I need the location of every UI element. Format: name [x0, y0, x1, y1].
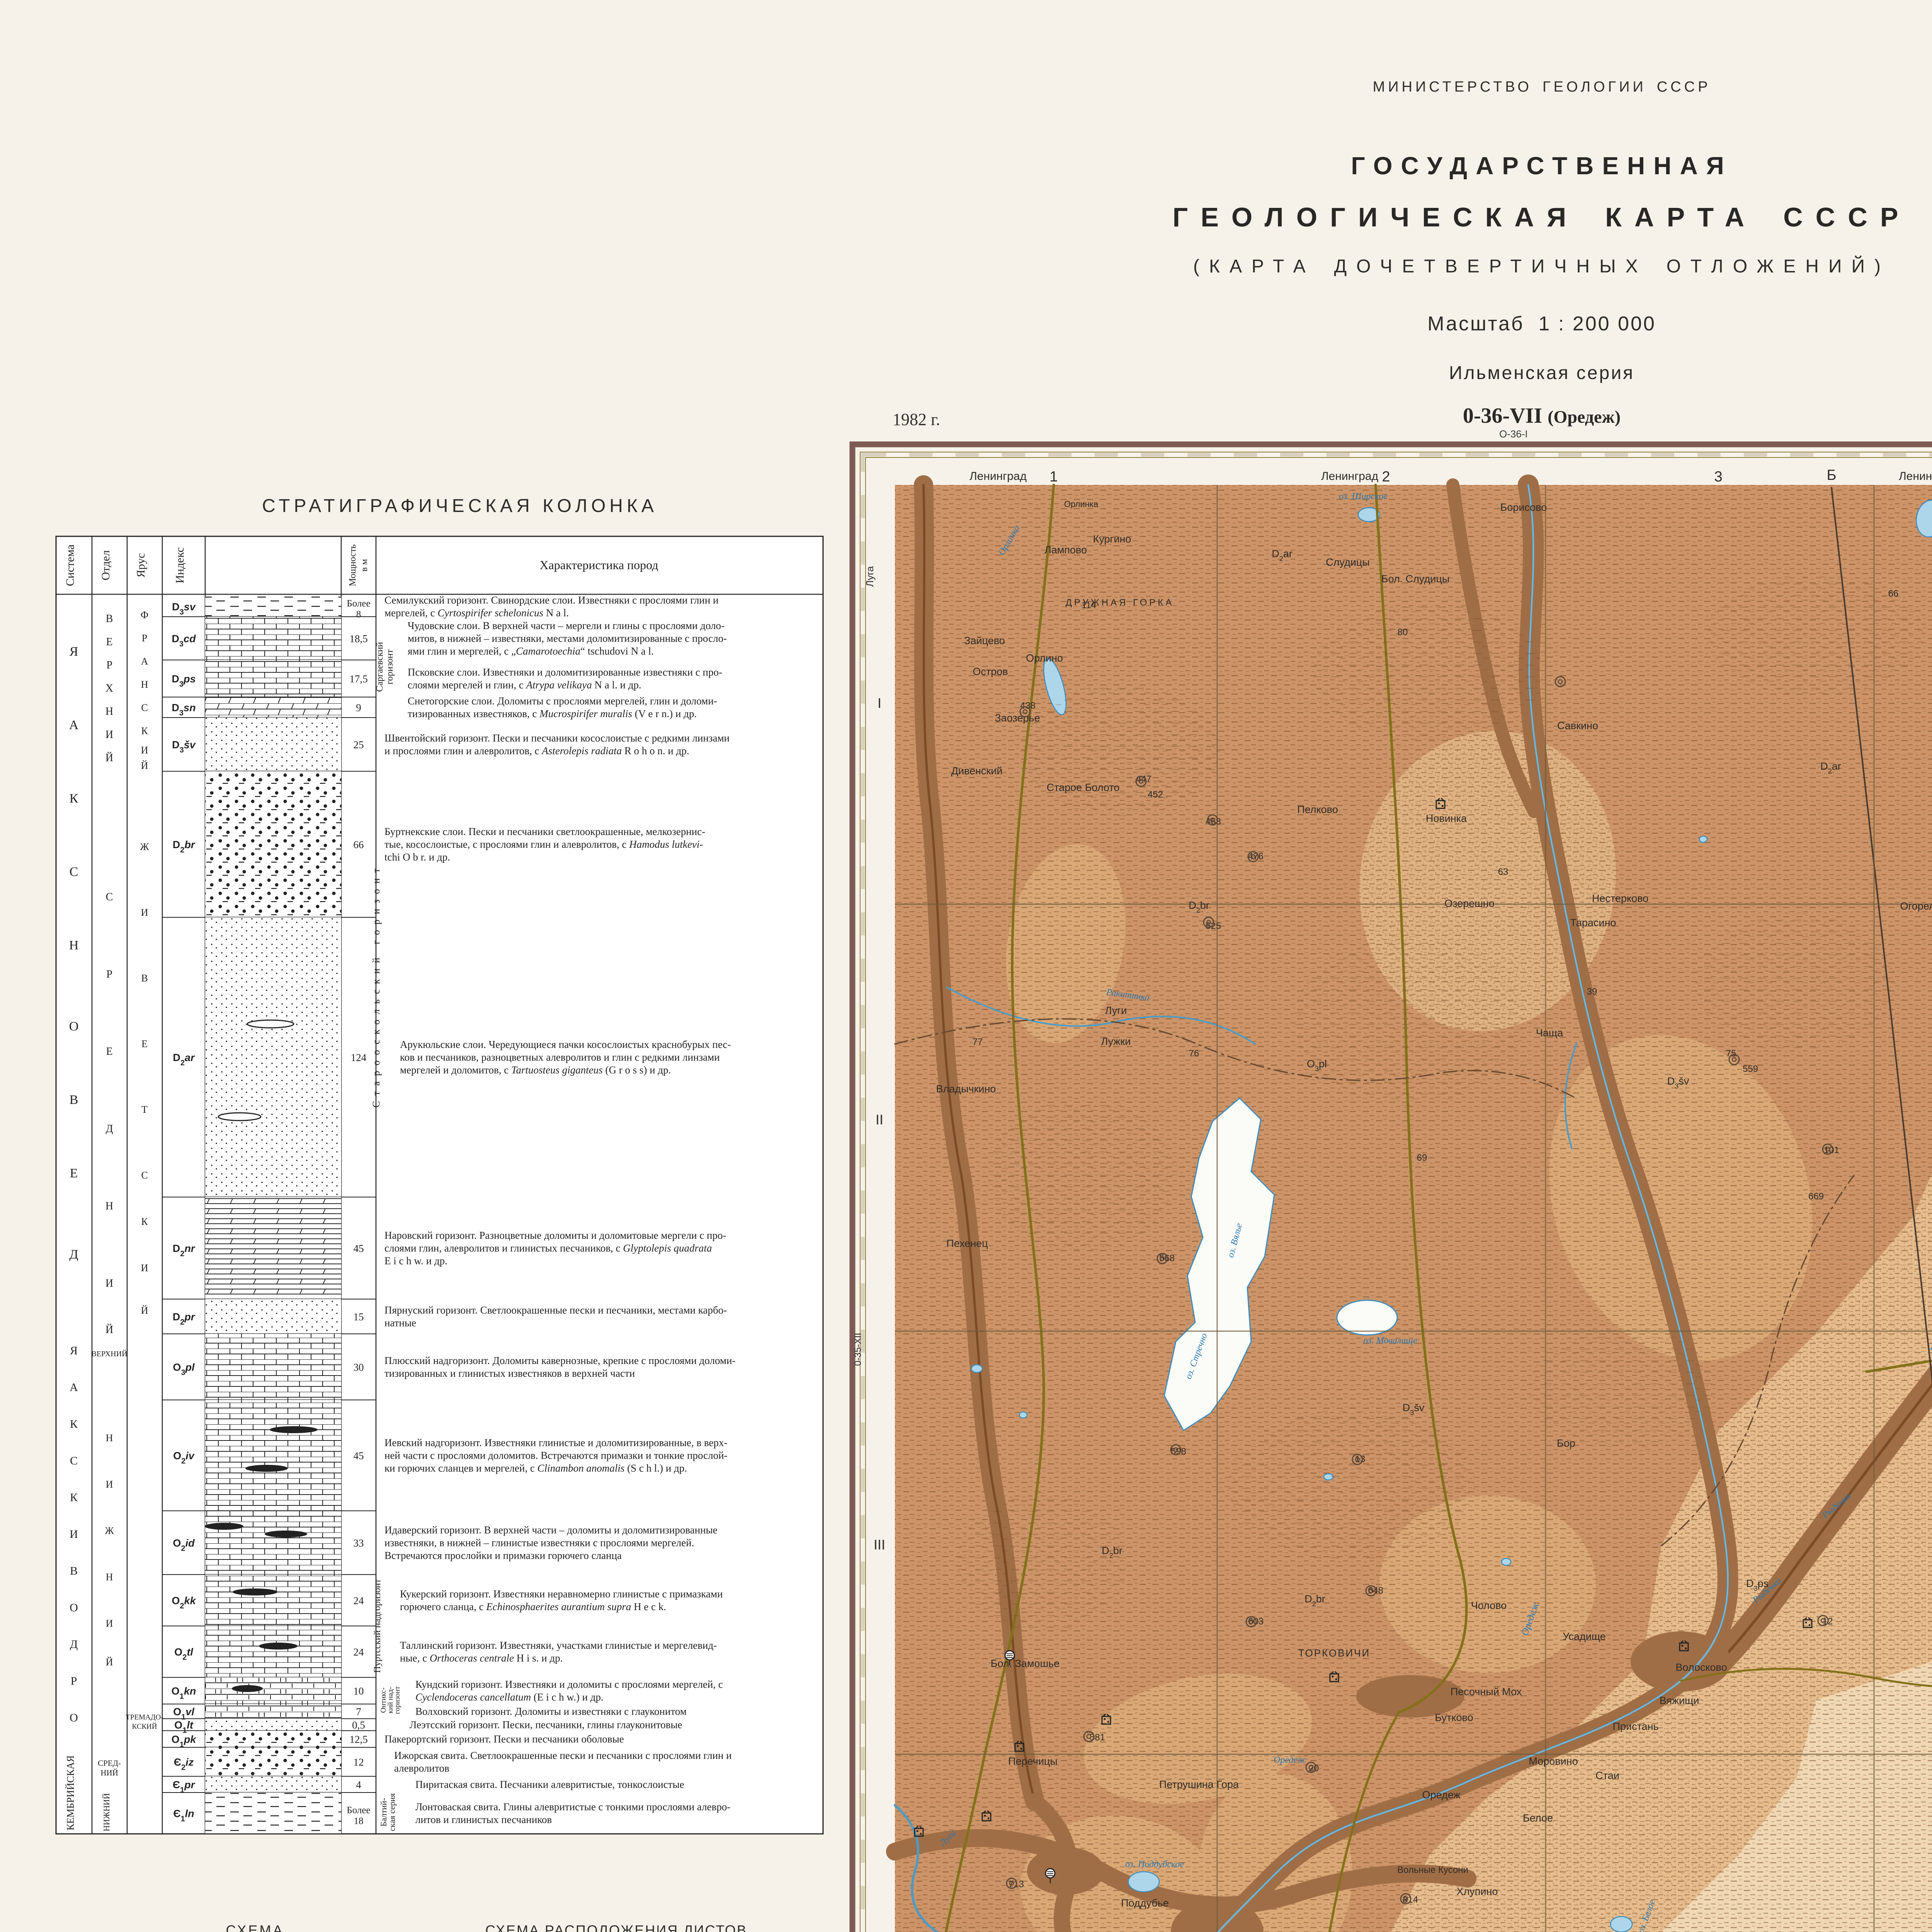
svg-text:Пакерортский горизонт. Пески и: Пакерортский горизонт. Пески и песчаники…: [384, 1733, 624, 1745]
svg-text:в м: в м: [359, 559, 369, 572]
svg-text:СРЕД-: СРЕД-: [98, 1759, 121, 1768]
svg-text:17,5: 17,5: [349, 673, 367, 685]
svg-text:Хлупино: Хлупино: [1457, 1886, 1498, 1897]
svg-text:Б: Б: [1827, 467, 1837, 483]
svg-text:Усадище: Усадище: [1563, 1631, 1606, 1642]
svg-text:Е: Е: [106, 636, 112, 648]
svg-text:Ижорская свита. Светлоокрашенн: Ижорская свита. Светлоокрашенные пески и…: [394, 1750, 732, 1761]
svg-text:И: И: [141, 1262, 148, 1274]
svg-text:известняки, в нижней – глинист: известняки, в нижней – глинистые известн…: [384, 1537, 694, 1549]
svg-text:25: 25: [354, 739, 364, 751]
svg-text:II: II: [876, 1112, 883, 1128]
svg-text:0,5: 0,5: [352, 1719, 365, 1731]
svg-text:669: 669: [1808, 1191, 1824, 1202]
svg-text:мергелей, с Cyrtospirifer sche: мергелей, с Cyrtospirifer schelonicus N …: [384, 607, 569, 619]
svg-text:Тарасино: Тарасино: [1570, 917, 1616, 929]
svg-text:Озерешно: Озерешно: [1444, 898, 1495, 909]
svg-text:Старооскольский горизонт: Старооскольский горизонт: [371, 863, 382, 1107]
svg-text:К: К: [70, 1418, 78, 1430]
svg-text:24: 24: [354, 1595, 364, 1607]
svg-text:С: С: [70, 865, 78, 879]
svg-text:К: К: [141, 1216, 148, 1227]
svg-text:Лампово: Лампово: [1044, 544, 1087, 556]
svg-text:И: И: [141, 745, 148, 756]
svg-text:Луга: Луга: [864, 566, 876, 587]
svg-text:И: И: [70, 1528, 78, 1541]
svg-text:Е: Е: [141, 1038, 148, 1049]
svg-text:Й: Й: [106, 1656, 113, 1668]
svg-text:тизированных известняков, с Mu: тизированных известняков, с Mucrospirife…: [408, 708, 697, 719]
svg-text:Дивенский: Дивенский: [951, 765, 1003, 777]
svg-text:69: 69: [1417, 1153, 1427, 1163]
svg-text:И: И: [106, 1479, 113, 1490]
svg-text:Й: Й: [105, 752, 113, 764]
svg-text:2: 2: [1382, 469, 1390, 485]
svg-text:447: 447: [1136, 774, 1151, 784]
svg-text:Петрушина Гора: Петрушина Гора: [1159, 1779, 1239, 1790]
svg-text:Н: Н: [106, 1432, 113, 1444]
svg-text:мергелей и доломитов, с Tartuo: мергелей и доломитов, с Tartuosteus giga…: [400, 1064, 671, 1076]
svg-text:Пристань: Пристань: [1612, 1721, 1658, 1732]
svg-text:Более: Более: [347, 599, 370, 609]
svg-text:слоями глин, алевролитов и гли: слоями глин, алевролитов и глинистых пес…: [384, 1242, 712, 1254]
svg-text:алевролитов: алевролитов: [394, 1762, 449, 1774]
svg-text:Д: Д: [105, 1123, 113, 1135]
svg-text:Кундский горизонт. Известняки: Кундский горизонт. Известняки и доломиты…: [415, 1679, 723, 1690]
svg-text:Н: Н: [106, 1571, 113, 1583]
svg-text:ки горючих сланцев и мергелей,: ки горючих сланцев и мергелей, с Clinamb…: [384, 1463, 687, 1474]
svg-text:В: В: [141, 973, 148, 984]
svg-text:Встречаются прослойки и примаз: Встречаются прослойки и примазки горючег…: [384, 1550, 622, 1561]
svg-text:Р: Р: [106, 659, 112, 671]
svg-text:Луги: Луги: [1105, 1005, 1127, 1016]
svg-text:Лонтоваская свита. Глины алевр: Лонтоваская свита. Глины алевритистые с …: [415, 1801, 730, 1813]
svg-text:И: И: [105, 1277, 113, 1289]
svg-text:Таллинский горизонт. Известняк: Таллинский горизонт. Известняки, участка…: [400, 1639, 717, 1651]
svg-text:Перечицы: Перечицы: [1008, 1755, 1058, 1767]
svg-text:Псковские слои. Известняки и д: Псковские слои. Известняки и доломитизир…: [408, 667, 722, 678]
svg-text:77: 77: [973, 1037, 983, 1047]
svg-text:митов, в нижней – известняки,: митов, в нижней – известняки, местами до…: [408, 633, 727, 644]
svg-text:Пехенец: Пехенец: [946, 1238, 988, 1249]
svg-text:Д: Д: [69, 1247, 78, 1262]
svg-text:15: 15: [354, 1311, 364, 1323]
svg-text:ТОРКОВИЧИ: ТОРКОВИЧИ: [1298, 1647, 1370, 1659]
svg-text:Оредеж: Оредеж: [1422, 1789, 1461, 1801]
svg-text:III: III: [874, 1537, 885, 1553]
svg-text:Белое: Белое: [1523, 1812, 1553, 1824]
svg-text:Снетогорские слои. Доломиты с: Снетогорские слои. Доломиты с прослоями …: [408, 695, 717, 707]
svg-text:Чудовские слои. В верхней част: Чудовские слои. В верхней части – мергел…: [408, 620, 724, 631]
svg-text:В: В: [70, 1565, 78, 1577]
svg-text:4: 4: [356, 1779, 361, 1791]
svg-text:Пелково: Пелково: [1297, 804, 1338, 815]
svg-text:К: К: [70, 791, 78, 806]
svg-text:Нестерково: Нестерково: [1592, 893, 1648, 904]
svg-text:Оредеж: Оредеж: [1274, 1755, 1306, 1765]
svg-text:Владычкино: Владычкино: [936, 1083, 996, 1095]
svg-text:Наровский горизонт. Разноцветн: Наровский горизонт. Разноцветные доломит…: [384, 1230, 726, 1241]
svg-text:9: 9: [356, 702, 361, 714]
svg-text:Р: Р: [106, 968, 112, 980]
svg-text:ные, с Orthoceras centrale H: ные, с Orthoceras centrale H i s. и др.: [400, 1652, 563, 1664]
svg-text:горизонт: горизонт: [393, 1686, 401, 1714]
svg-text:Леэтсский горизонт. Пески, пес: Леэтсский горизонт. Пески, песчаники, гл…: [410, 1719, 682, 1731]
svg-text:559: 559: [1743, 1064, 1758, 1074]
svg-text:Орлинка: Орлинка: [1064, 499, 1099, 509]
svg-text:12: 12: [354, 1757, 364, 1768]
svg-text:оз. Мочалище: оз. Мочалище: [1363, 1336, 1417, 1346]
svg-text:Стаи: Стаи: [1595, 1770, 1619, 1781]
svg-text:В: В: [106, 613, 113, 625]
svg-text:А: А: [69, 718, 79, 732]
svg-text:Вольные Кусони: Вольные Кусони: [1397, 1865, 1468, 1875]
svg-text:ями глин и мергелей, с „Camaro: ями глин и мергелей, с „Camarotoechia“ t…: [408, 645, 654, 657]
svg-text:80: 80: [1398, 627, 1408, 638]
svg-text:18: 18: [354, 1816, 364, 1827]
svg-text:438: 438: [1020, 701, 1036, 711]
svg-text:О: О: [70, 1711, 78, 1724]
svg-text:В: В: [70, 1093, 78, 1107]
svg-text:и прослоями глин и алевролитов: и прослоями глин и алевролитов, с Astero…: [384, 745, 689, 757]
svg-text:ков и песчаников, разноцветных: ков и песчаников, разноцветных алевролит…: [400, 1051, 720, 1063]
svg-text:39: 39: [1587, 986, 1597, 997]
svg-text:Орлино: Орлино: [1026, 652, 1063, 664]
svg-text:С: С: [141, 1170, 148, 1181]
svg-text:Е: Е: [70, 1166, 78, 1180]
svg-text:12,5: 12,5: [349, 1734, 367, 1745]
svg-text:63: 63: [1498, 867, 1509, 877]
svg-text:Х: Х: [105, 682, 113, 694]
svg-text:Иевский надгоризонт. Известняк: Иевский надгоризонт. Известняки глинисты…: [384, 1437, 728, 1449]
svg-text:452: 452: [1148, 789, 1163, 800]
svg-text:Отдел: Отдел: [99, 550, 112, 580]
svg-text:45: 45: [354, 1450, 364, 1462]
svg-text:Ленинград: Ленинград: [969, 470, 1027, 483]
svg-text:ней части с прослоями доломито: ней части с прослоями доломитов. Встреча…: [384, 1450, 728, 1461]
svg-text:66: 66: [354, 839, 364, 850]
svg-text:Плюсский надгоризонт. Доломиты: Плюсский надгоризонт. Доломиты кавернозн…: [384, 1355, 736, 1366]
svg-text:45: 45: [354, 1243, 364, 1254]
svg-text:Швентойский горизонт. Пески и: Швентойский горизонт. Пески и песчаники …: [384, 732, 730, 744]
svg-text:Волосково: Волосково: [1675, 1662, 1727, 1673]
svg-text:И: И: [141, 907, 148, 918]
svg-text:66: 66: [1888, 588, 1899, 599]
svg-text:Я: Я: [70, 1344, 78, 1357]
svg-text:Ярус: Ярус: [134, 553, 147, 578]
svg-text:горючего сланца, с Echinosphae: горючего сланца, с Echinosphaerites aura…: [400, 1601, 666, 1612]
svg-text:Более: Более: [347, 1805, 370, 1816]
svg-text:Новинка: Новинка: [1426, 813, 1467, 824]
svg-text:Вяжищи: Вяжищи: [1660, 1695, 1699, 1706]
svg-text:Заозерье: Заозерье: [995, 712, 1040, 724]
svg-text:Пуртсский надгоризонт: Пуртсский надгоризонт: [372, 1579, 383, 1673]
svg-text:Н: Н: [141, 679, 148, 690]
svg-text:Ф: Ф: [141, 609, 149, 621]
svg-text:Песочный Мох: Песочный Мох: [1451, 1686, 1522, 1697]
svg-text:СТРАТИГРАФИЧЕСКАЯ КОЛОНКА: СТРАТИГРАФИЧЕСКАЯ КОЛОНКА: [262, 496, 658, 516]
svg-text:С: С: [141, 702, 148, 713]
svg-text:Н: Н: [105, 1200, 113, 1212]
svg-text:литов и глинистых песчаников: литов и глинистых песчаников: [415, 1814, 552, 1825]
svg-text:8: 8: [356, 609, 361, 620]
svg-text:Поддубье: Поддубье: [1121, 1897, 1169, 1909]
svg-text:30: 30: [354, 1362, 364, 1373]
svg-text:оз. Ширское: оз. Ширское: [1339, 492, 1388, 502]
svg-text:натные: натные: [384, 1317, 416, 1329]
svg-text:124: 124: [351, 1052, 367, 1063]
svg-text:Индекс: Индекс: [173, 547, 186, 583]
svg-text:7: 7: [356, 1706, 361, 1718]
svg-text:Й: Й: [141, 760, 148, 771]
svg-text:А: А: [141, 656, 148, 667]
svg-text:Чаща: Чаща: [1536, 1027, 1563, 1039]
svg-text:Саргаевский: Саргаевский: [375, 642, 385, 692]
svg-text:С: С: [106, 891, 113, 903]
svg-text:Кургино: Кургино: [1093, 533, 1131, 545]
svg-text:Мощность: Мощность: [348, 544, 358, 587]
svg-text:горизонт: горизонт: [385, 649, 395, 684]
svg-text:О: О: [69, 1019, 79, 1034]
svg-text:оз. Поддубское: оз. Поддубское: [1125, 1859, 1184, 1869]
svg-text:И: И: [106, 1618, 113, 1629]
svg-text:Арукюльские слои. Чередующиеся: Арукюльские слои. Чередующиеся пачки кос…: [400, 1039, 731, 1050]
svg-text:Кукерский горизонт. Известняки: Кукерский горизонт. Известняки неравноме…: [400, 1588, 723, 1600]
svg-text:Cyclendoceras cancellatum (E i: Cyclendoceras cancellatum (E i c h w.) и…: [415, 1691, 604, 1703]
svg-text:3: 3: [1714, 469, 1722, 485]
svg-text:тизированных и глинистых извес: тизированных и глинистых известняков в в…: [384, 1367, 635, 1379]
svg-text:Савкино: Савкино: [1557, 720, 1598, 731]
svg-text:I: I: [878, 695, 881, 711]
svg-text:Н: Н: [105, 706, 113, 718]
svg-text:Моровино: Моровино: [1529, 1755, 1578, 1767]
svg-text:Бол. Слудицы: Бол. Слудицы: [1381, 573, 1449, 585]
svg-text:1: 1: [1049, 469, 1058, 485]
svg-text:33: 33: [354, 1537, 364, 1549]
svg-text:Пиритаская свита. Песчаники ал: Пиритаская свита. Песчаники алевритистые…: [415, 1779, 684, 1790]
svg-text:Бол. Замошье: Бол. Замошье: [991, 1658, 1060, 1669]
svg-text:Зайцево: Зайцево: [964, 635, 1005, 646]
svg-text:Система: Система: [64, 544, 77, 586]
svg-text:О: О: [70, 1601, 78, 1614]
svg-text:Слудицы: Слудицы: [1326, 556, 1370, 568]
svg-text:598: 598: [1171, 1446, 1186, 1457]
svg-text:К: К: [70, 1491, 78, 1504]
svg-text:0-35-XII: 0-35-XII: [853, 1333, 863, 1366]
svg-text:Бор: Бор: [1557, 1437, 1575, 1449]
svg-text:Ж: Ж: [140, 841, 149, 852]
svg-text:Пярнуский горизонт. Светлоокра: Пярнуский горизонт. Светлоокрашенные пес…: [384, 1304, 727, 1316]
svg-text:слоями мергелей и глин, с Atry: слоями мергелей и глин, с Atrypa velikay…: [408, 679, 641, 691]
svg-text:Н: Н: [69, 938, 79, 952]
svg-text:тые, косослоистые, с прослоями: тые, косослоистые, с прослоями глин и ал…: [384, 838, 703, 850]
svg-text:76: 76: [1189, 1048, 1199, 1059]
svg-text:НИЙ: НИЙ: [100, 1768, 118, 1777]
svg-text:Й: Й: [105, 1324, 113, 1336]
svg-text:Идаверский горизонт. В верхней: Идаверский горизонт. В верхней части – д…: [384, 1524, 718, 1536]
svg-text:ВЕРХНИЙ: ВЕРХНИЙ: [91, 1349, 127, 1358]
svg-text:С: С: [70, 1454, 78, 1467]
svg-text:Я: Я: [70, 645, 78, 659]
svg-text:И: И: [105, 729, 113, 741]
svg-text:tchi O b r. и др.: tchi O b r. и др.: [384, 851, 450, 863]
svg-text:К: К: [141, 725, 148, 736]
svg-text:Р: Р: [71, 1675, 77, 1687]
svg-text:Остров: Остров: [973, 666, 1008, 677]
svg-text:10: 10: [354, 1685, 364, 1697]
svg-text:Старое Болото: Старое Болото: [1047, 782, 1120, 793]
svg-text:Ленинград: Ленинград: [1899, 470, 1932, 483]
svg-text:Чолово: Чолово: [1471, 1600, 1507, 1611]
svg-text:КЕМБРИЙСКАЯ: КЕМБРИЙСКАЯ: [65, 1755, 76, 1830]
svg-text:ТРЕМАДО-: ТРЕМАДО-: [126, 1713, 163, 1721]
svg-text:24: 24: [354, 1646, 364, 1658]
svg-text:Т: Т: [141, 1104, 148, 1115]
svg-text:18,5: 18,5: [349, 633, 367, 645]
svg-text:114: 114: [1082, 600, 1096, 611]
svg-text:Лужки: Лужки: [1101, 1036, 1131, 1047]
svg-text:Борисово: Борисово: [1500, 502, 1547, 513]
svg-text:КСКИЙ: КСКИЙ: [132, 1723, 157, 1731]
svg-text:Ж: Ж: [105, 1525, 114, 1536]
svg-text:НИЖНИЙ: НИЖНИЙ: [102, 1793, 111, 1831]
svg-text:А: А: [70, 1381, 78, 1394]
svg-text:Волховский горизонт. Доломиты: Волховский горизонт. Доломиты и известня…: [415, 1706, 687, 1717]
svg-text:Д: Д: [70, 1638, 78, 1651]
svg-text:Семилукский горизонт. Свинордс: Семилукский горизонт. Свинордские слои. …: [384, 594, 719, 606]
svg-text:Р: Р: [142, 633, 147, 644]
svg-text:Ленинград: Ленинград: [1321, 470, 1378, 483]
svg-text:Бутково: Бутково: [1435, 1712, 1473, 1723]
svg-text:Характеристика пород: Характеристика пород: [539, 558, 658, 572]
svg-text:Й: Й: [141, 1305, 148, 1316]
svg-text:ская серия: ская серия: [387, 1793, 397, 1831]
svg-text:E i c h w. и др.: E i c h w. и др.: [384, 1255, 447, 1267]
svg-text:Е: Е: [106, 1046, 112, 1058]
svg-text:Буртнекские слои. Пески и песч: Буртнекские слои. Пески и песчаники свет…: [384, 826, 705, 837]
svg-text:Огорели: Огорели: [1900, 900, 1932, 912]
